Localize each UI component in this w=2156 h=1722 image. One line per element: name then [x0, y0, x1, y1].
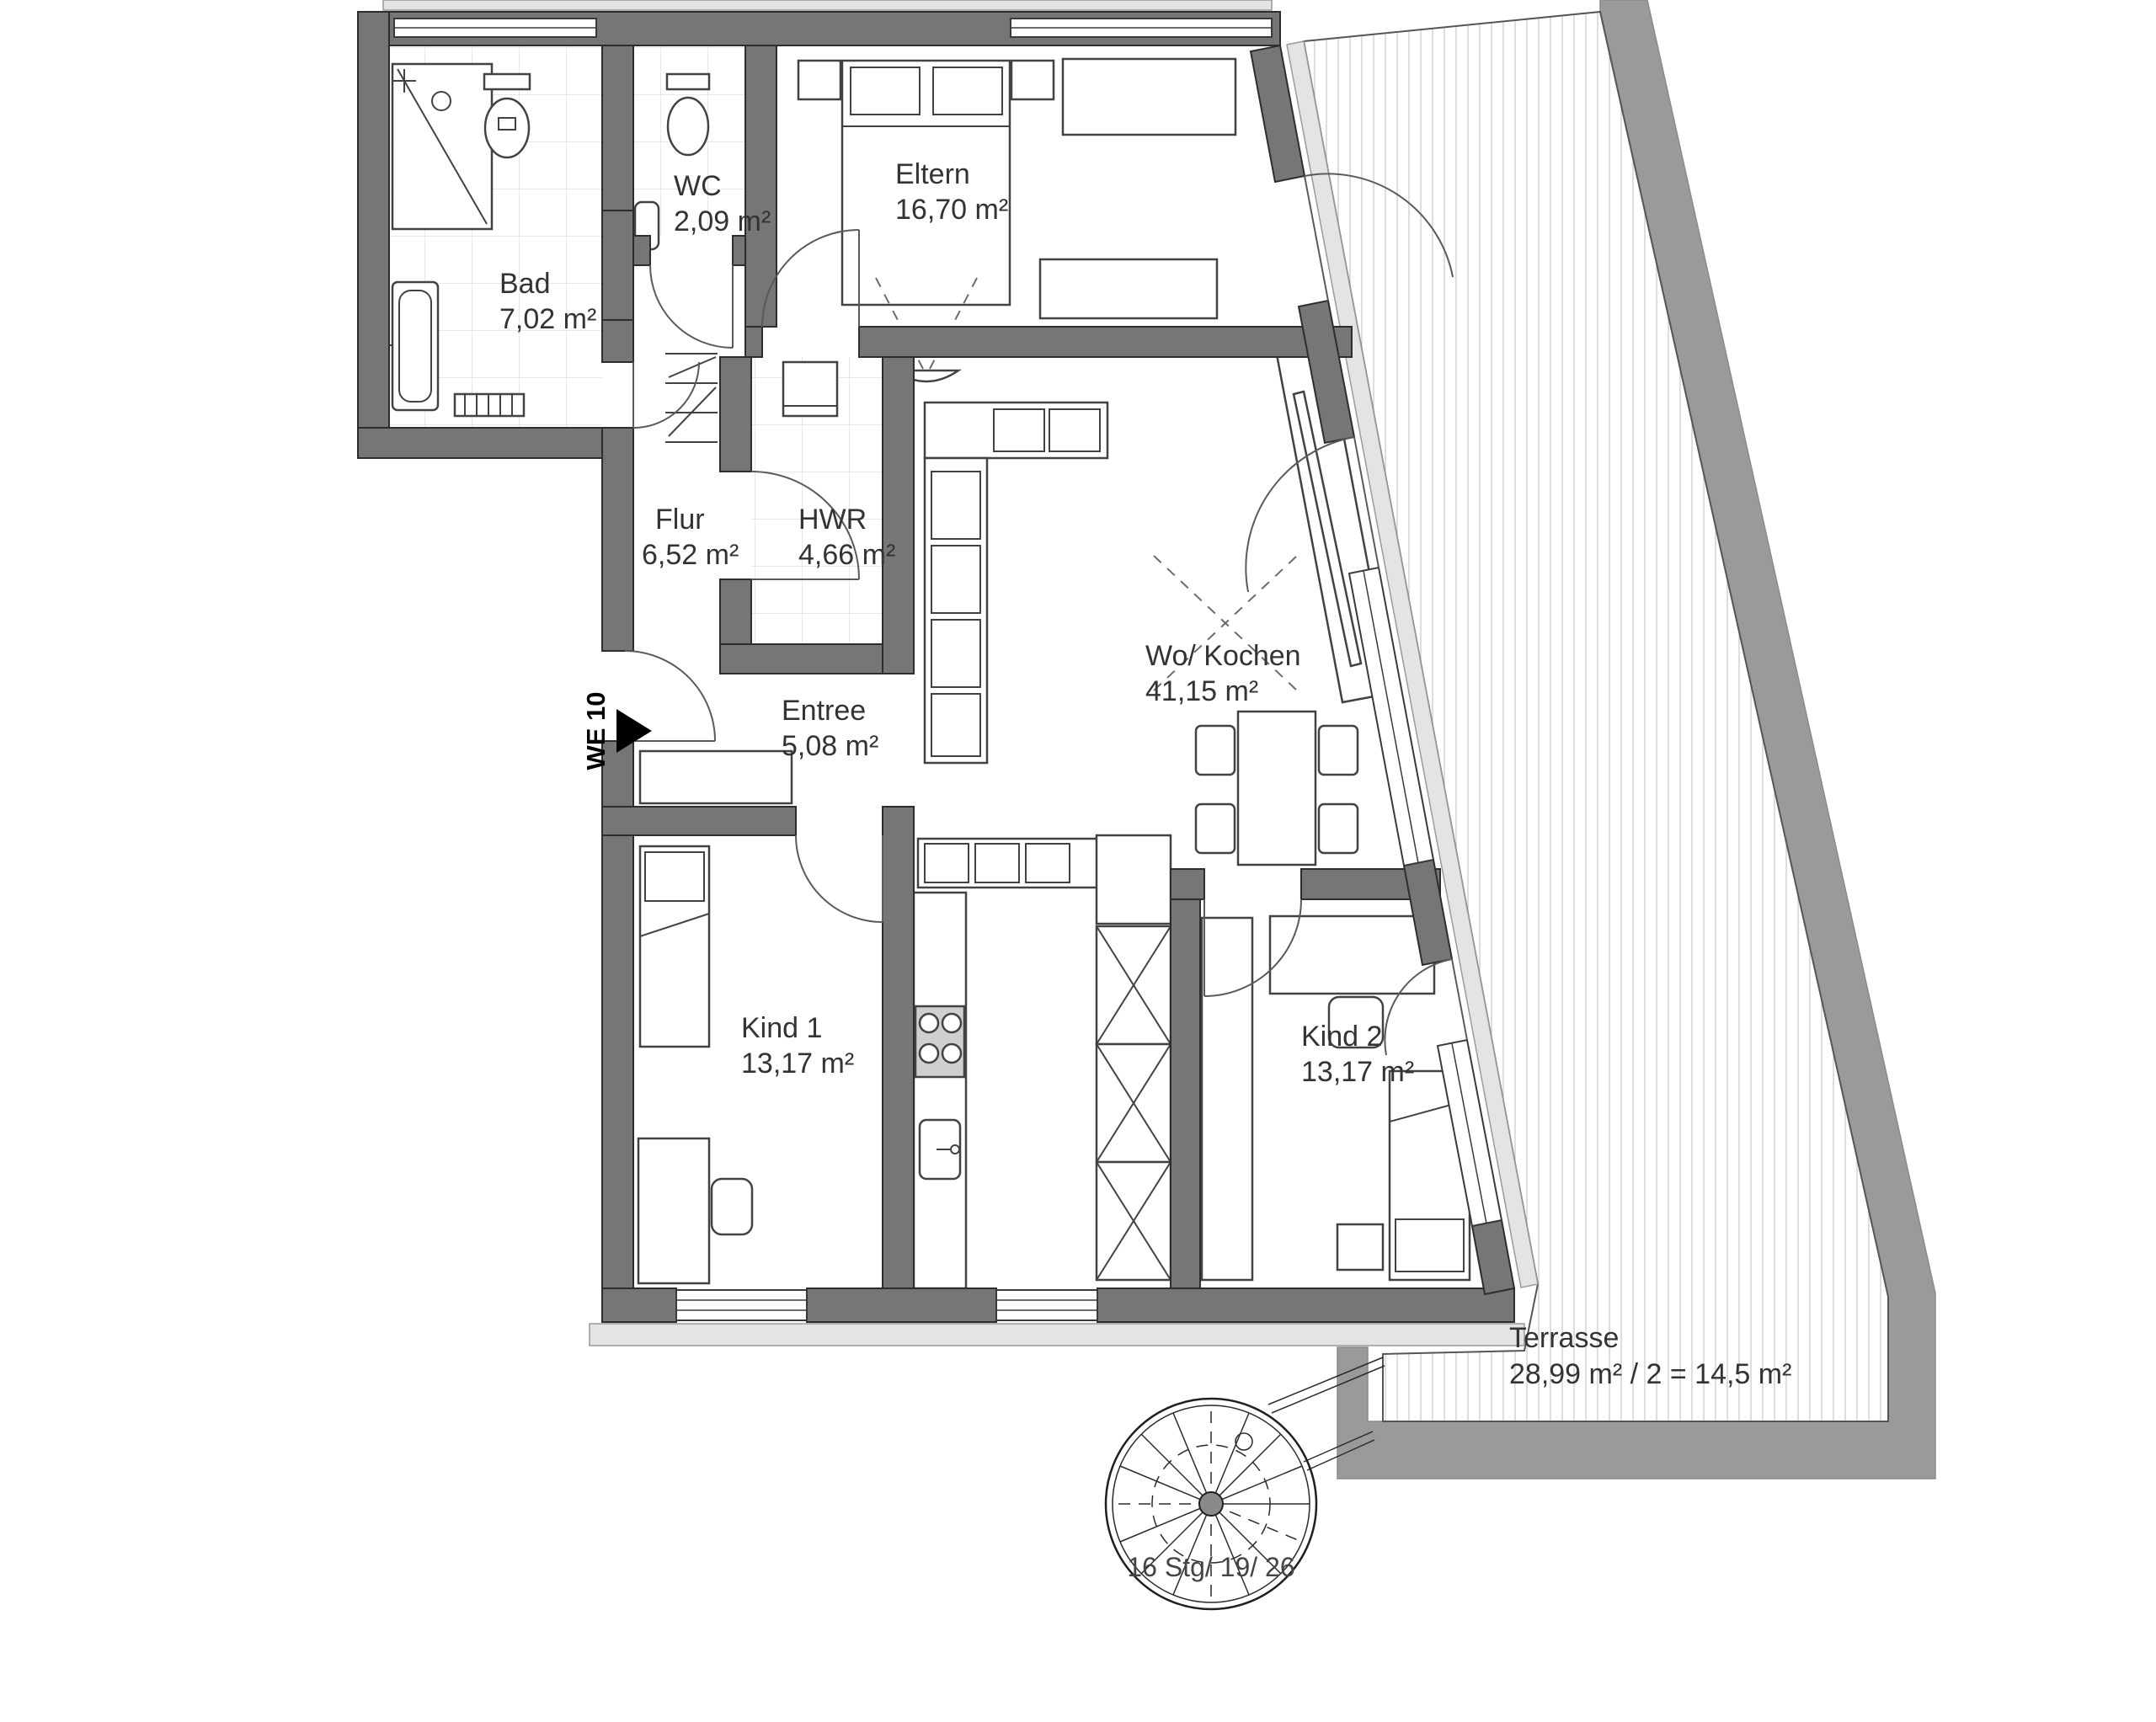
top-facade-strip [383, 0, 1272, 10]
label-wc-name: WC [674, 170, 722, 202]
label-entree-name: Entree [782, 695, 866, 727]
label-bad-area: 7,02 m² [499, 303, 596, 335]
label-kind1-area: 13,17 m² [741, 1048, 854, 1080]
nightstand-left [798, 61, 841, 99]
wardrobe-icon [1063, 59, 1235, 135]
coat-rack-icon [665, 354, 718, 442]
label-wc-area: 2,09 m² [674, 205, 771, 237]
kitchen-upper-counter [918, 839, 1116, 888]
shower-icon [392, 64, 492, 229]
kind1-door [796, 835, 883, 922]
sofa-icon [925, 403, 1107, 763]
pantry-cabinet-icon [1097, 926, 1171, 1280]
floor-plan: Bad 7,02 m² WC 2,09 m² Eltern 16,70 m² F… [0, 0, 2156, 1722]
label-living-name: Wo/ Kochen [1145, 640, 1301, 672]
label-eltern-area: 16,70 m² [895, 194, 1008, 226]
label-flur-name: Flur [655, 504, 705, 536]
label-living-area: 41,15 m² [1145, 675, 1258, 707]
label-kind2-name: Kind 2 [1301, 1021, 1382, 1053]
dresser-icon [1040, 259, 1217, 318]
label-entree-area: 5,08 m² [782, 730, 878, 762]
wc-door [650, 265, 733, 348]
label-hwr-area: 4,66 m² [798, 539, 895, 571]
label-kind1-name: Kind 1 [741, 1012, 822, 1044]
window-kind1-bottom [676, 1290, 807, 1320]
wc-toilet-icon [667, 74, 709, 155]
kitchen-counter [914, 893, 966, 1288]
toilet-icon [484, 74, 530, 157]
kitchen-fixtures [914, 835, 1171, 1288]
stove-icon [915, 1006, 964, 1077]
radiator-icon [455, 394, 524, 416]
child1-chair-icon [712, 1179, 752, 1234]
window-eltern-top [1011, 19, 1272, 37]
child2-wardrobe-icon [1202, 918, 1252, 1280]
label-flur-area: 6,52 m² [642, 539, 739, 571]
child2-nightstand [1337, 1224, 1383, 1270]
child1-bed-icon [640, 846, 709, 1047]
tall-cabinet [1097, 835, 1171, 924]
dining-table-icon [1196, 712, 1358, 865]
child1-furniture [638, 846, 752, 1283]
label-bad-name: Bad [499, 268, 551, 300]
child1-desk-icon [638, 1138, 709, 1283]
label-stairs: 16 Stg/ 19/ 26 [1127, 1552, 1294, 1582]
bottom-sill [590, 1324, 1524, 1346]
label-hwr-name: HWR [798, 504, 867, 536]
bad-door [633, 362, 699, 428]
washing-machine-icon [783, 362, 837, 416]
label-eltern-name: Eltern [895, 158, 970, 190]
window-bad-top [394, 19, 596, 37]
nightstand-right [1011, 61, 1054, 99]
window-kitchen-bottom [996, 1290, 1097, 1320]
label-terrasse-name: Terrasse [1509, 1322, 1619, 1354]
child2-furniture [1202, 916, 1470, 1280]
label-kind2-area: 13,17 m² [1301, 1056, 1414, 1088]
kitchen-sink-icon [920, 1120, 960, 1179]
unit-label: WE 10 [581, 691, 611, 770]
entry-closet-icon [640, 751, 792, 803]
label-terrasse-area: 28,99 m² / 2 = 14,5 m² [1509, 1358, 1791, 1390]
